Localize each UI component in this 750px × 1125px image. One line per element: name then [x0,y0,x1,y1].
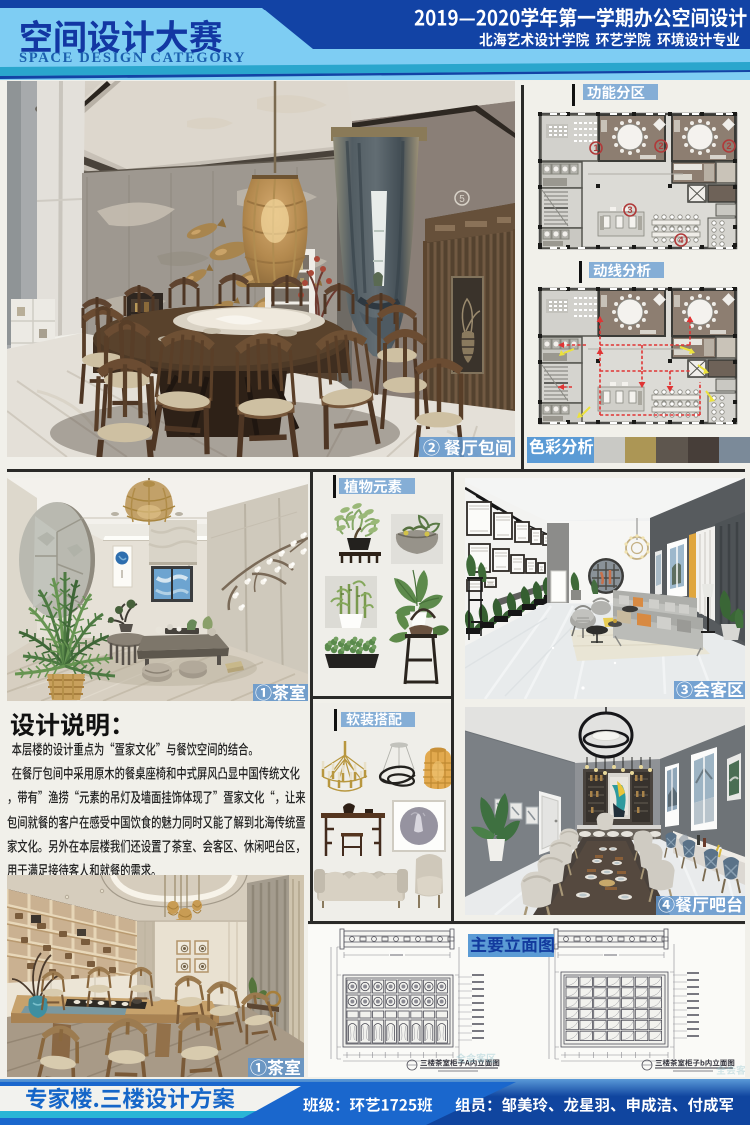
svg-text:3: 3 [627,205,632,215]
svg-text:5: 5 [459,194,465,205]
svg-text:2: 2 [726,141,731,151]
svg-text:1: 1 [593,143,598,153]
svg-text:4: 4 [678,235,683,245]
svg-text:2: 2 [658,141,663,151]
